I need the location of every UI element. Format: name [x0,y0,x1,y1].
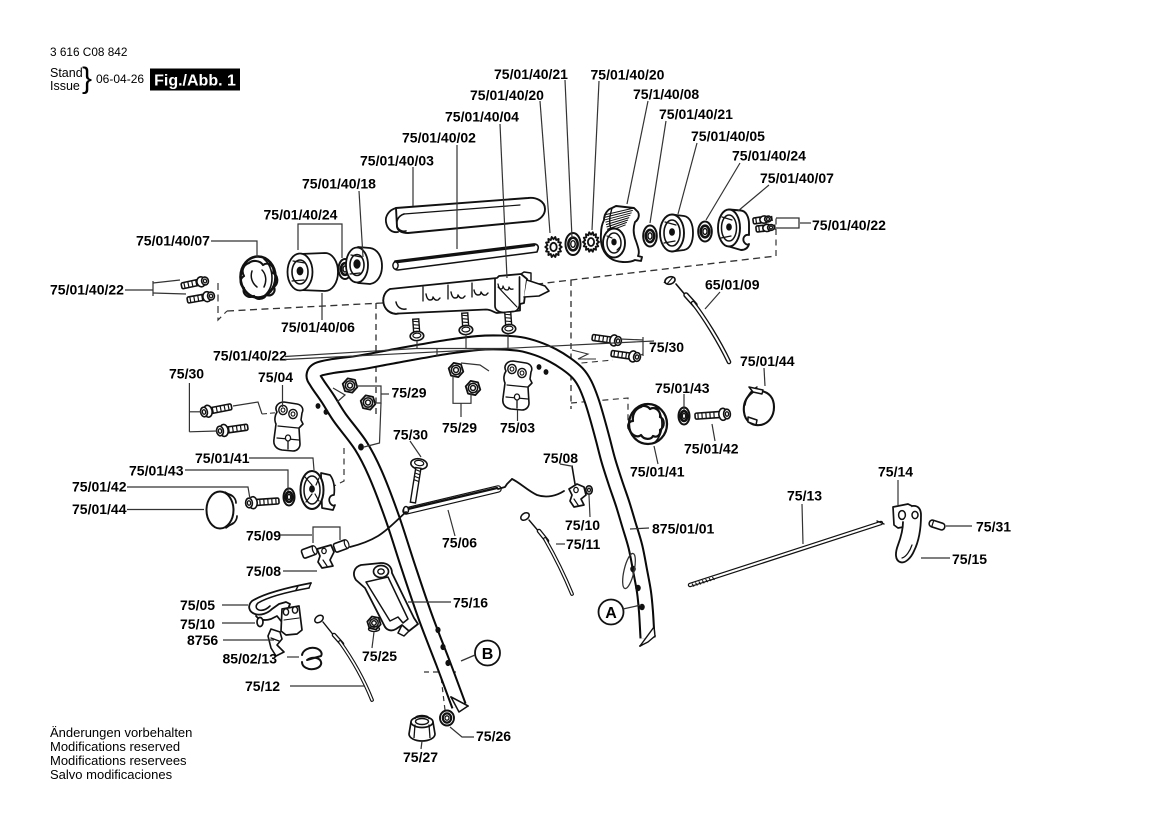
svg-text:B: B [482,646,494,663]
svg-text:75/01/40/03: 75/01/40/03 [360,153,434,169]
svg-text:75/04: 75/04 [258,369,293,385]
svg-text:75/05: 75/05 [180,597,215,613]
svg-text:65/01/09: 65/01/09 [705,276,760,292]
svg-text:75/01/41: 75/01/41 [630,464,685,480]
svg-text:75/06: 75/06 [442,535,477,551]
svg-text:75/12: 75/12 [245,678,280,694]
svg-text:75/01/41: 75/01/41 [195,450,250,466]
svg-text:75/01/40/07: 75/01/40/07 [136,233,210,249]
svg-text:Stand: Stand [50,66,83,80]
svg-text:75/01/40/21: 75/01/40/21 [659,106,733,122]
svg-text:75/29: 75/29 [392,385,427,401]
svg-text:75/01/40/20: 75/01/40/20 [470,87,544,103]
svg-text:75/01/40/04: 75/01/40/04 [445,109,519,125]
svg-text:75/29: 75/29 [442,420,477,436]
svg-text:75/01/40/24: 75/01/40/24 [732,148,806,164]
svg-text:75/14: 75/14 [878,464,913,480]
svg-text:75/30: 75/30 [169,366,204,382]
svg-text:75/08: 75/08 [246,563,281,579]
svg-text:75/01/44: 75/01/44 [740,353,795,369]
svg-text:75/10: 75/10 [180,616,215,632]
svg-text:85/02/13: 85/02/13 [223,651,278,667]
svg-text:875/01/01: 875/01/01 [652,521,714,537]
svg-text:A: A [605,605,617,622]
svg-text:75/01/40/06: 75/01/40/06 [281,319,355,335]
svg-text:75/30: 75/30 [649,339,684,355]
svg-text:75/01/43: 75/01/43 [129,463,184,479]
svg-text:75/03: 75/03 [500,420,535,436]
svg-text:75/25: 75/25 [362,648,397,664]
svg-text:75/01/40/02: 75/01/40/02 [402,130,476,146]
svg-text:75/26: 75/26 [476,728,511,744]
svg-text:}: } [82,62,92,95]
svg-text:75/01/44: 75/01/44 [72,501,127,517]
svg-text:Issue: Issue [50,79,80,93]
svg-text:75/01/40/05: 75/01/40/05 [691,128,765,144]
svg-text:75/01/40/22: 75/01/40/22 [50,282,124,298]
svg-text:Fig./Abb. 1: Fig./Abb. 1 [154,73,236,90]
svg-text:75/01/43: 75/01/43 [655,380,710,396]
svg-text:75/01/42: 75/01/42 [684,441,739,457]
svg-text:75/09: 75/09 [246,528,281,544]
svg-text:75/01/40/18: 75/01/40/18 [302,176,376,192]
svg-text:75/16: 75/16 [453,595,488,611]
svg-text:75/30: 75/30 [393,427,428,443]
svg-text:75/01/40/21: 75/01/40/21 [494,66,568,82]
svg-text:75/01/40/24: 75/01/40/24 [264,207,338,223]
svg-text:75/11: 75/11 [566,536,600,552]
svg-text:3 616 C08 842: 3 616 C08 842 [50,45,127,59]
svg-text:75/01/40/07: 75/01/40/07 [760,170,834,186]
svg-text:75/01/40/22: 75/01/40/22 [812,217,886,233]
svg-text:75/27: 75/27 [403,749,438,765]
svg-text:8756: 8756 [187,632,218,648]
svg-text:Modifications reserved: Modifications reserved [50,739,180,754]
svg-text:Modifications reservees: Modifications reservees [50,753,187,768]
svg-text:75/13: 75/13 [787,488,822,504]
svg-text:Salvo modificaciones: Salvo modificaciones [50,767,173,782]
svg-text:75/15: 75/15 [952,551,987,567]
svg-text:75/01/40/20: 75/01/40/20 [591,67,665,83]
svg-text:Änderungen vorbehalten: Änderungen vorbehalten [50,725,192,740]
svg-text:75/1/40/08: 75/1/40/08 [633,86,699,102]
svg-text:75/01/42: 75/01/42 [72,479,127,495]
svg-text:75/31: 75/31 [976,519,1011,535]
svg-text:75/01/40/22: 75/01/40/22 [213,348,287,364]
svg-text:75/10: 75/10 [565,517,600,533]
svg-text:06-04-26: 06-04-26 [96,72,144,86]
